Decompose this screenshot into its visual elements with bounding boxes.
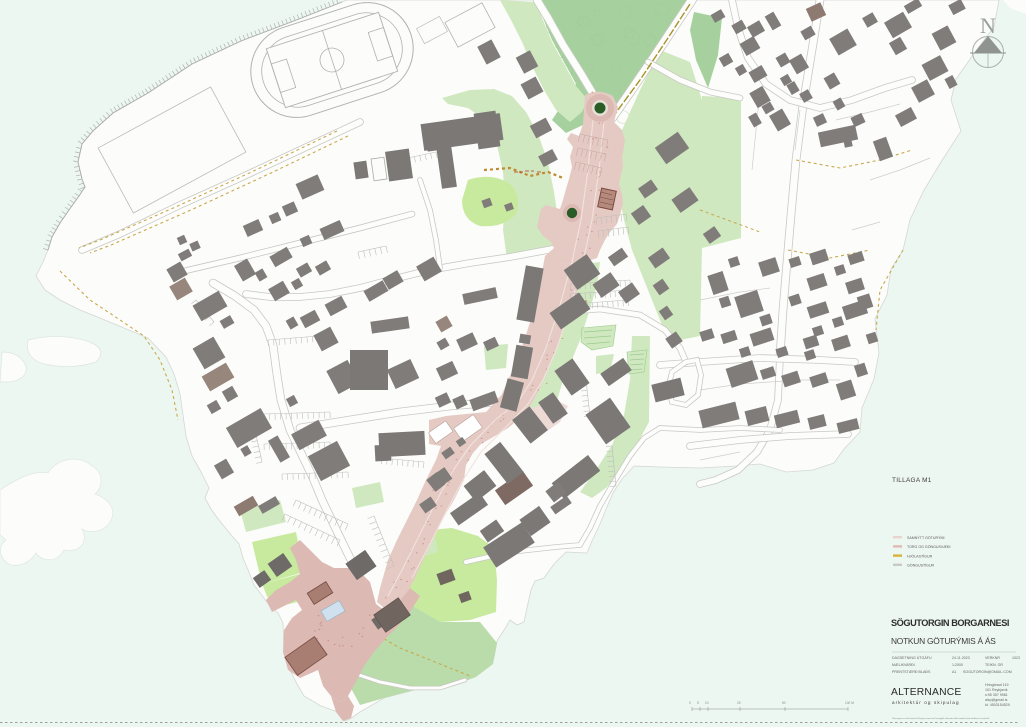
- svg-text:0: 0: [689, 701, 691, 705]
- svg-text:1023: 1023: [1012, 656, 1020, 660]
- svg-text:A1: A1: [952, 670, 956, 674]
- svg-text:SOGUTORGIN@GMAIL.COM: SOGUTORGIN@GMAIL.COM: [963, 670, 1012, 674]
- svg-text:alsp@gmail.is: alsp@gmail.is: [985, 698, 1008, 702]
- svg-text:MÆLIKVARÐI: MÆLIKVARÐI: [892, 663, 915, 667]
- svg-text:TILLAGA M1: TILLAGA M1: [892, 477, 932, 484]
- svg-text:SAMNÝTT GÖTURÝMI: SAMNÝTT GÖTURÝMI: [907, 536, 944, 540]
- svg-text:10: 10: [705, 701, 709, 705]
- svg-text:100 M: 100 M: [845, 701, 854, 705]
- svg-text:N: N: [980, 13, 996, 38]
- svg-text:5: 5: [697, 701, 699, 705]
- svg-text:VERKNR: VERKNR: [985, 656, 1000, 660]
- svg-text:kt. 4503154529: kt. 4503154529: [985, 703, 1010, 707]
- svg-text:s:95 357 9981: s:95 357 9981: [985, 693, 1008, 697]
- svg-text:1:2000: 1:2000: [952, 663, 963, 667]
- svg-text:25: 25: [737, 701, 741, 705]
- svg-text:TEIKN. GR: TEIKN. GR: [985, 663, 1003, 667]
- svg-text:DAGSETNING ÚTGÁFU: DAGSETNING ÚTGÁFU: [892, 655, 932, 660]
- svg-text:ALTERNANCE: ALTERNANCE: [891, 687, 961, 698]
- svg-text:arkitektúr og skipulag: arkitektúr og skipulag: [892, 700, 960, 705]
- svg-text:Hringbraut 119: Hringbraut 119: [985, 683, 1009, 687]
- svg-text:GÖNGUSTÍGUR: GÖNGUSTÍGUR: [907, 564, 935, 568]
- svg-text:101 Reykjavík: 101 Reykjavík: [985, 688, 1008, 692]
- svg-text:PRENTSTÆRÐ BLAÐS: PRENTSTÆRÐ BLAÐS: [892, 670, 931, 674]
- svg-text:SÖGUTORGIN BORGARNESI: SÖGUTORGIN BORGARNESI: [891, 618, 1009, 628]
- svg-text:HJÓLASTÍGUR: HJÓLASTÍGUR: [907, 553, 933, 558]
- svg-text:TORG OG GÖNGUSVÆÐI: TORG OG GÖNGUSVÆÐI: [907, 545, 950, 549]
- svg-text:24.11.2023: 24.11.2023: [952, 656, 970, 660]
- svg-text:50: 50: [782, 701, 786, 705]
- svg-text:Teikningum er ekki heimilt að: Teikningum er ekki heimilt að breyta nem…: [892, 717, 990, 720]
- svg-text:NOTKUN GÖTURÝMIS Á ÁS: NOTKUN GÖTURÝMIS Á ÁS: [891, 636, 996, 646]
